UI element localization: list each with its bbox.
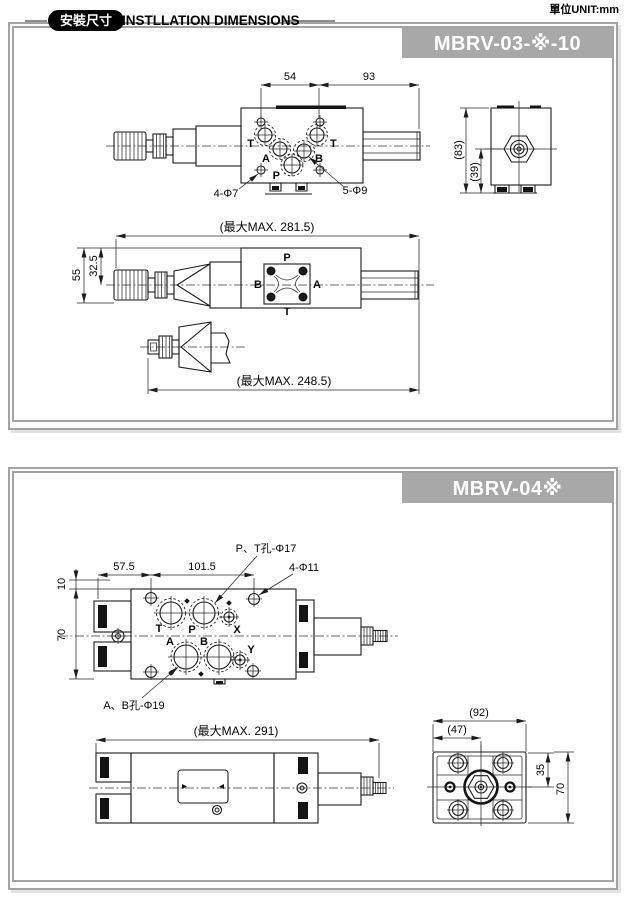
port-label-t-left: T: [247, 138, 254, 150]
mbrv04-drawing: T P X A B Y: [14, 473, 612, 880]
section-title: INSTLLATION DIMENSIONS: [122, 13, 300, 28]
dim-70-end-label: 70: [555, 783, 567, 795]
port-label-x: X: [233, 624, 241, 636]
port-label-a: A: [262, 153, 270, 165]
dim-39-label: (39): [469, 162, 481, 182]
dim-55-label: 55: [71, 269, 83, 281]
side-port-t: T: [284, 306, 291, 318]
panel-mbrv04-inner: T P X A B Y: [12, 471, 614, 882]
panel-mbrv03: MBRV-03-※-10: [8, 22, 618, 430]
port-label-y: Y: [247, 644, 255, 656]
dim-92-label: (92): [469, 707, 489, 719]
mbrv03-end-view: (83) (39): [453, 101, 557, 193]
dim-47-label: (47): [447, 724, 467, 736]
dim-93-label: 93: [363, 71, 375, 83]
port-label-p: P: [273, 170, 280, 182]
callout-pt-phi17: P、T孔-Φ17: [236, 542, 297, 555]
callout-ab-phi19: A、B孔-Φ19: [103, 699, 164, 712]
side-port-p: P: [283, 252, 290, 264]
dim-10-label: 10: [56, 578, 68, 590]
mbrv04-side-view: (最大MAX. 291): [89, 724, 394, 823]
panel-mbrv03-inner: T T A B P 54 93: [12, 26, 614, 422]
mbrv04-end-view: (92) (47) 35 70: [427, 707, 574, 826]
dim-325-label: 32.5: [88, 255, 100, 276]
model-badge-mbrv04: MBRV-04※: [402, 473, 613, 503]
dim-575-label: 57.5: [113, 561, 134, 573]
mbrv03-side-view: (最大MAX. 281.5) 55 32.5: [71, 220, 434, 394]
section-badge: 安裝尺寸: [48, 10, 124, 31]
dim-70-label: 70: [56, 629, 68, 641]
catalog-page: 單位UNIT:mm 安裝尺寸 INSTLLATION DIMENSIONS MB…: [0, 0, 626, 897]
side-port-a: A: [313, 279, 321, 291]
model-badge-mbrv03: MBRV-03-※-10: [402, 28, 613, 58]
mbrv03-top-view: T T A B P 54 93: [106, 71, 430, 200]
side-port-b: B: [254, 279, 262, 291]
dim-max-2485-label: (最大MAX. 248.5): [237, 374, 332, 388]
callout-5-phi9: 5-Φ9: [343, 185, 368, 197]
port-label-t-right: T: [330, 138, 337, 150]
port-label-a: A: [166, 636, 174, 648]
dim-max-2815-label: (最大MAX. 281.5): [220, 220, 315, 234]
unit-label: 單位UNIT:mm: [549, 1, 619, 17]
port-label-p: P: [188, 624, 195, 636]
mbrv03-alt-adjuster-view: (最大MAX. 248.5): [140, 322, 419, 394]
callout-4-phi11: 4-Φ11: [289, 562, 319, 574]
dim-35-label: 35: [535, 764, 547, 776]
callout-4-phi7: 4-Φ7: [214, 188, 239, 200]
dim-54-label: 54: [284, 71, 296, 83]
mbrv04-top-view: T P X A B Y: [56, 542, 398, 712]
dim-max-291-label: (最大MAX. 291): [194, 724, 279, 738]
mbrv03-drawing: T T A B P 54 93: [14, 28, 612, 420]
port-label-b: B: [200, 636, 208, 648]
header-rule-left: [25, 20, 47, 22]
port-label-t: T: [156, 623, 163, 635]
panel-mbrv04: MBRV-04※: [8, 467, 618, 890]
dim-83-label: (83): [453, 140, 465, 160]
dim-1015-label: 101.5: [188, 561, 216, 573]
